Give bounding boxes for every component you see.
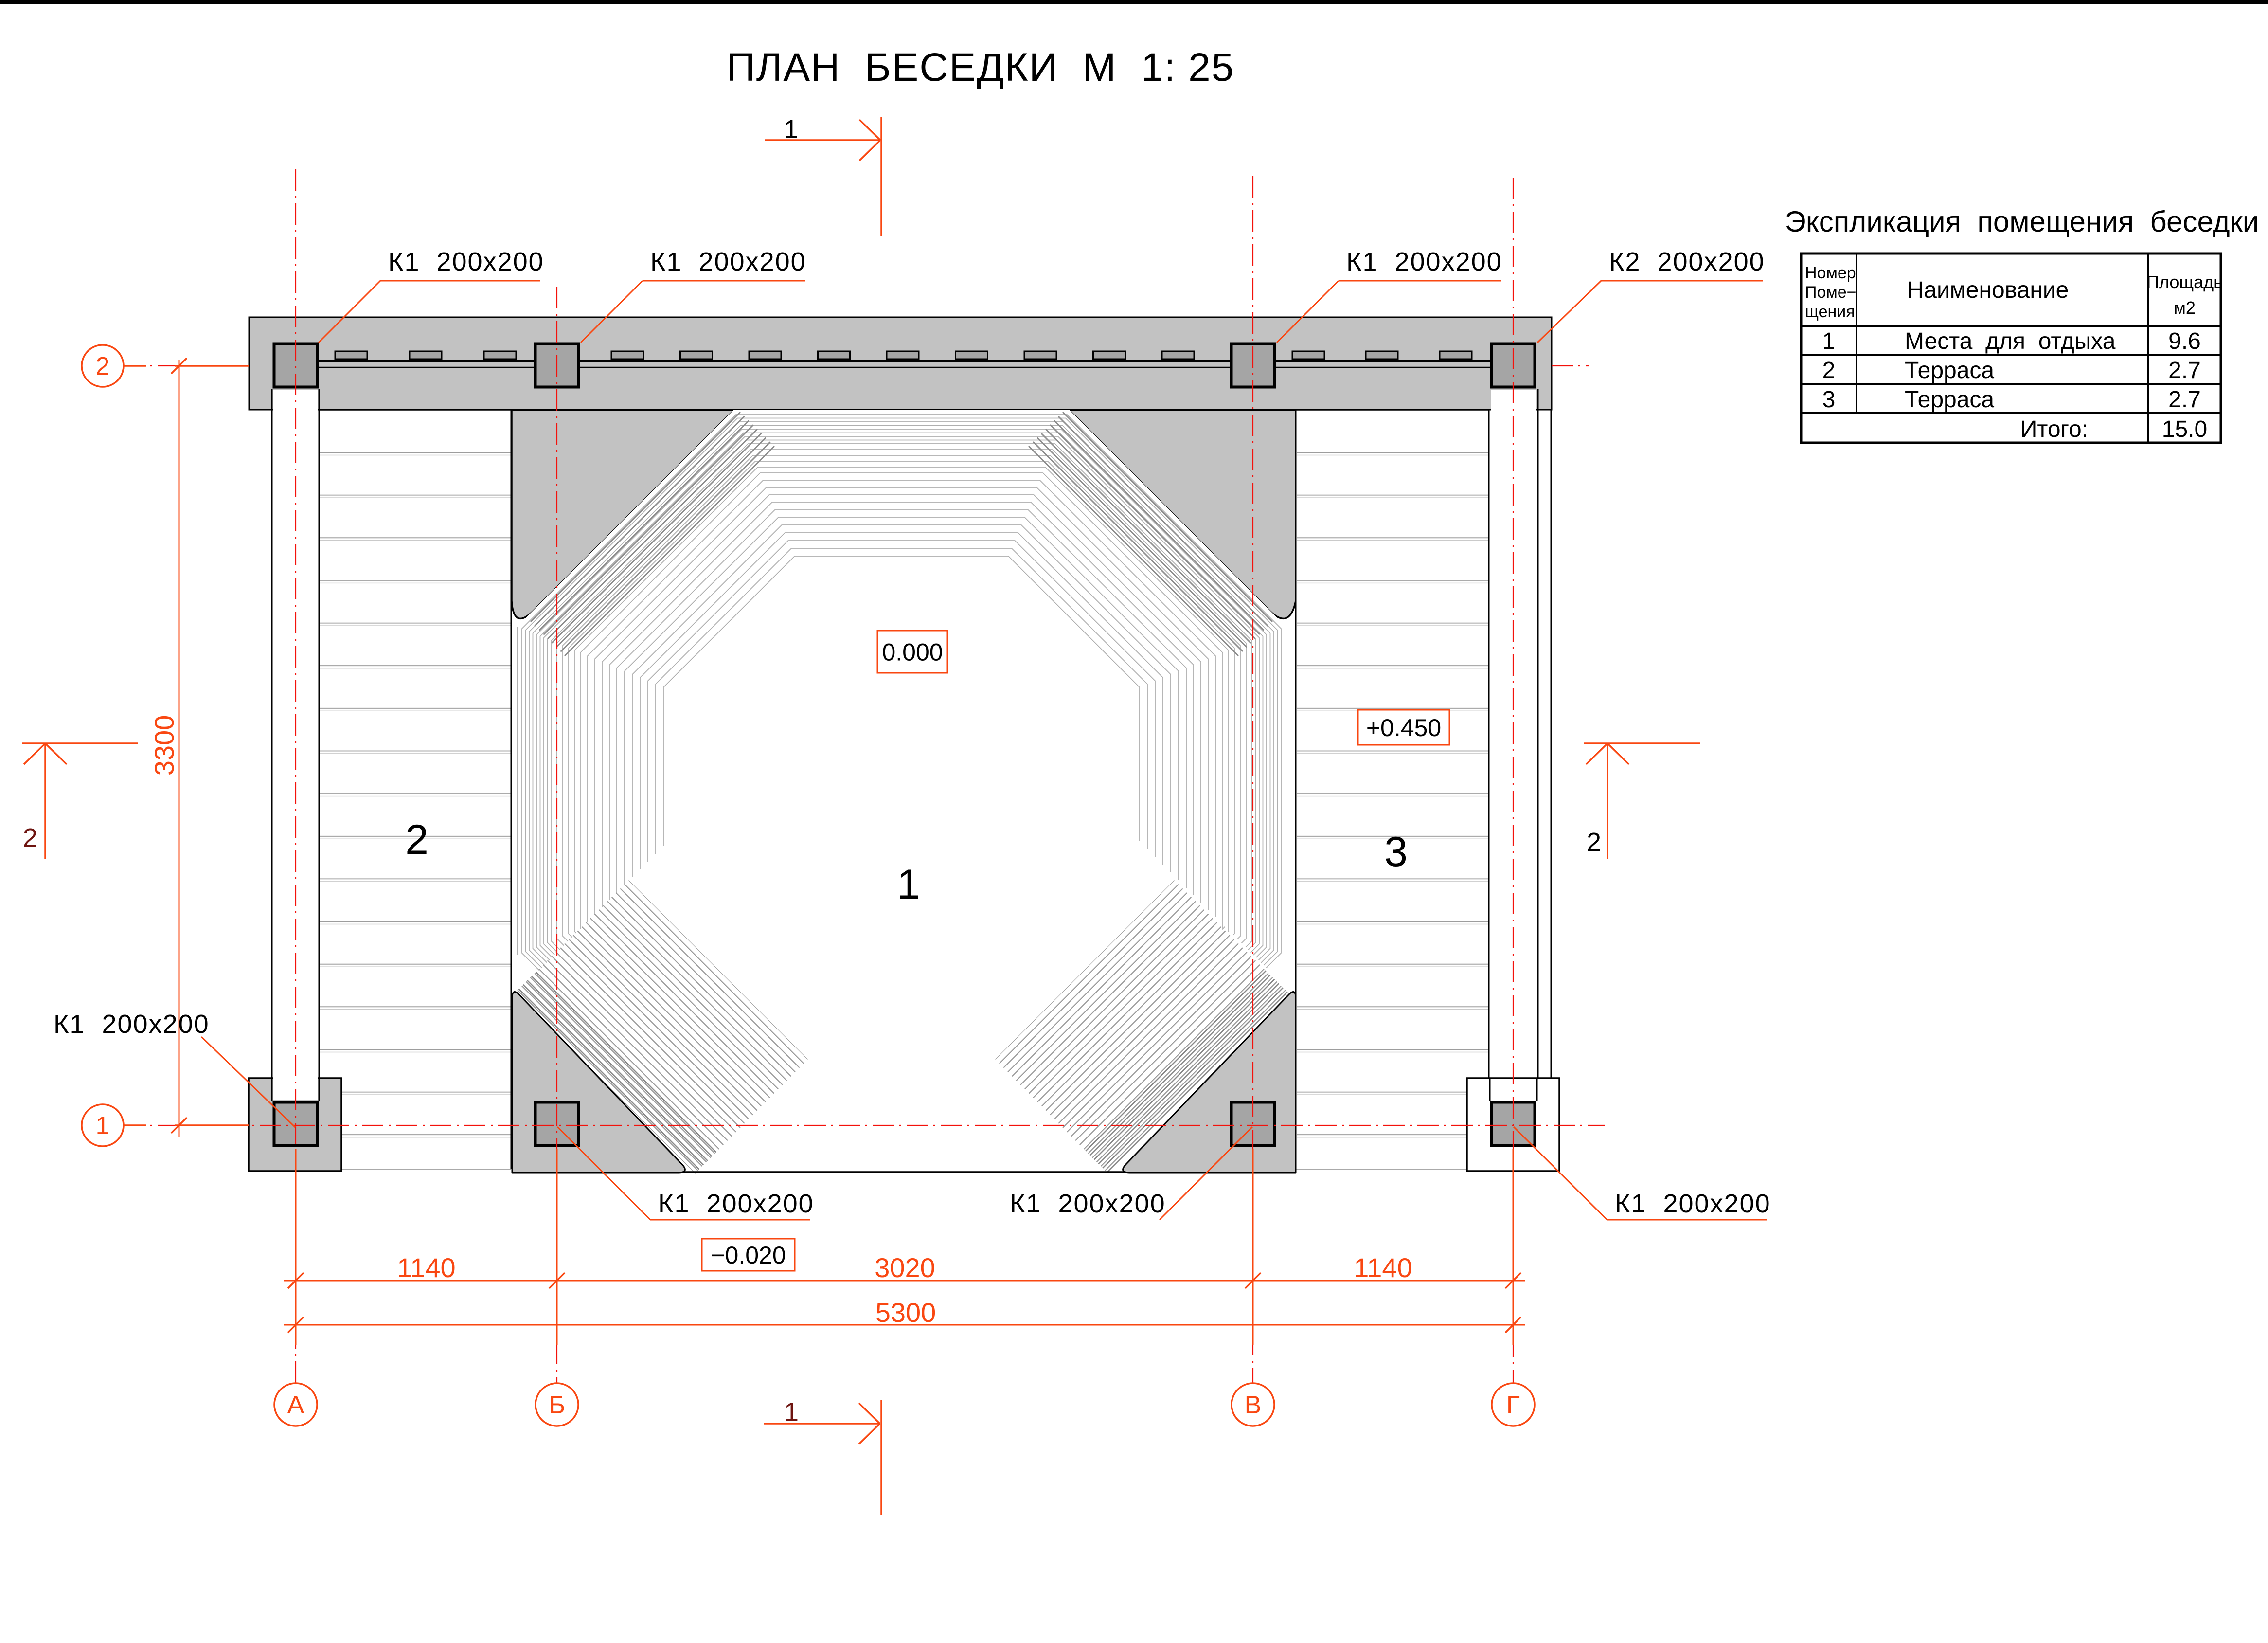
svg-text:Терраса: Терраса xyxy=(1905,358,1994,383)
svg-text:Наименование: Наименование xyxy=(1907,277,2069,303)
svg-text:Поме−: Поме− xyxy=(1805,283,1857,302)
svg-text:3: 3 xyxy=(1822,387,1836,413)
svg-text:К1 200х200: К1 200х200 xyxy=(388,247,544,276)
svg-text:−0.020: −0.020 xyxy=(711,1242,786,1269)
svg-text:Номер: Номер xyxy=(1805,264,1856,282)
svg-text:3300: 3300 xyxy=(149,715,179,776)
svg-text:2: 2 xyxy=(405,816,429,863)
svg-text:К1 200х200: К1 200х200 xyxy=(1010,1189,1166,1218)
svg-text:2.7: 2.7 xyxy=(2168,387,2201,413)
svg-text:Б: Б xyxy=(549,1391,565,1419)
svg-text:Площадь: Площадь xyxy=(2146,272,2223,292)
svg-text:К1 200х200: К1 200х200 xyxy=(1346,247,1502,276)
svg-text:К1 200х200: К1 200х200 xyxy=(54,1010,210,1039)
svg-text:К1 200х200: К1 200х200 xyxy=(1615,1189,1771,1218)
svg-text:2: 2 xyxy=(96,352,110,380)
svg-text:+0.450: +0.450 xyxy=(1366,714,1441,741)
svg-text:3: 3 xyxy=(1384,829,1408,875)
svg-text:1140: 1140 xyxy=(1354,1252,1412,1283)
svg-text:2: 2 xyxy=(1587,828,1601,857)
svg-text:1: 1 xyxy=(1822,328,1836,354)
svg-text:А: А xyxy=(287,1391,304,1419)
svg-text:Места для отдыха: Места для отдыха xyxy=(1905,328,2116,354)
svg-text:ПЛАН БЕСЕДКИ М 1: 25: ПЛАН БЕСЕДКИ М 1: 25 xyxy=(727,45,1235,90)
svg-text:К1 200х200: К1 200х200 xyxy=(658,1189,814,1218)
svg-text:15.0: 15.0 xyxy=(2162,416,2207,442)
svg-text:1: 1 xyxy=(897,861,920,908)
svg-text:Экспликация помещения беседк: Экспликация помещения беседки xyxy=(1785,205,2259,238)
svg-text:5300: 5300 xyxy=(875,1297,936,1328)
svg-text:2.7: 2.7 xyxy=(2168,358,2201,383)
svg-text:3020: 3020 xyxy=(875,1252,935,1283)
svg-text:щения: щения xyxy=(1805,303,1855,321)
svg-text:Итого:: Итого: xyxy=(2020,416,2088,442)
svg-text:9.6: 9.6 xyxy=(2168,328,2201,354)
svg-text:К2 200х200: К2 200х200 xyxy=(1609,247,1765,276)
svg-text:м2: м2 xyxy=(2174,298,2196,318)
svg-text:1140: 1140 xyxy=(397,1252,455,1283)
svg-text:В: В xyxy=(1245,1391,1262,1419)
svg-text:1: 1 xyxy=(784,115,798,144)
svg-text:К1 200х200: К1 200х200 xyxy=(650,247,806,276)
svg-text:Г: Г xyxy=(1506,1391,1520,1419)
svg-text:2: 2 xyxy=(23,823,37,852)
svg-text:1: 1 xyxy=(784,1397,799,1426)
svg-text:0.000: 0.000 xyxy=(882,639,943,666)
svg-text:1: 1 xyxy=(96,1112,110,1140)
svg-text:2: 2 xyxy=(1822,358,1836,383)
svg-text:Терраса: Терраса xyxy=(1905,387,1994,413)
